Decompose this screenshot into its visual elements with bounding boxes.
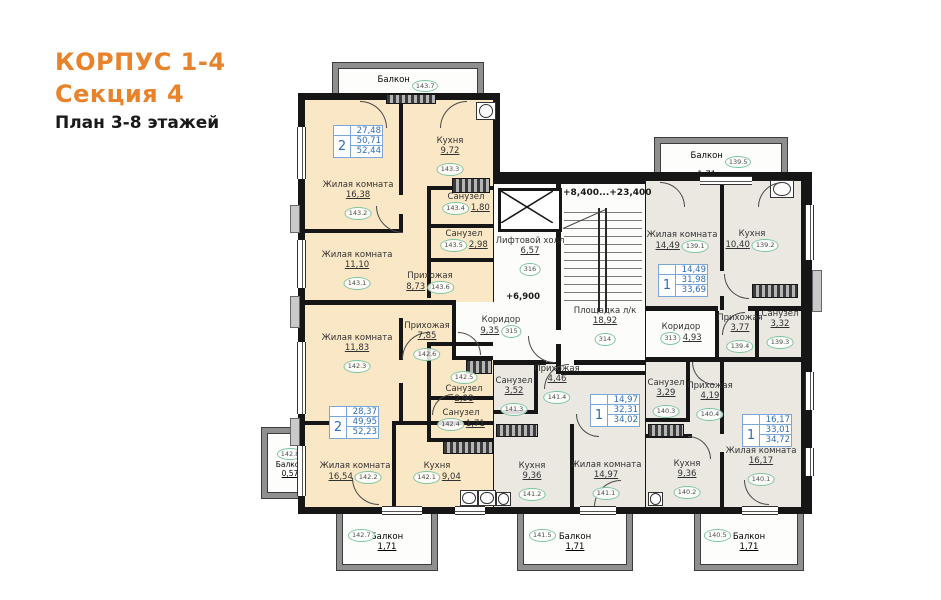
room-tag: 143.1	[344, 277, 371, 290]
room-area: 3,29	[648, 388, 685, 398]
room-tag: 139.1	[682, 240, 709, 253]
window	[297, 342, 306, 414]
apartment-rooms-count: 1	[659, 275, 676, 296]
room-label-living-16-38: Жилая комната 16,38 143.2	[323, 180, 394, 220]
room-name: Прихожая	[406, 271, 454, 281]
room-label-wc-1-71: Санузел 142.41,71	[437, 408, 485, 431]
room-area: 1,71	[740, 542, 759, 552]
plan-title-building: КОРПУС 1-4	[55, 48, 226, 76]
apartment-area: 33,01	[760, 425, 791, 435]
apartment-rooms-count: 1	[743, 425, 760, 446]
room-name: Жилая комната	[320, 461, 391, 471]
window	[455, 506, 485, 515]
apartment-info-140: 1 16,17 33,01 34,72	[742, 414, 792, 447]
wall	[452, 300, 456, 360]
window	[580, 506, 616, 515]
room-tag: 141.2	[519, 488, 546, 501]
room-tag: 140.1	[748, 473, 775, 486]
room-label-living-16-54: Жилая комната 16,54142.2	[320, 461, 391, 484]
room-area: 3,77	[717, 323, 763, 333]
wall-pier	[290, 296, 300, 328]
room-name: Прихожая	[717, 313, 763, 323]
room-tag: 139.4	[727, 340, 754, 353]
vent-circle	[648, 492, 663, 506]
stair-rail	[598, 208, 600, 312]
room-label-living-16-17: Жилая комната 16,17 140.1	[726, 446, 797, 486]
window	[805, 205, 814, 260]
room-label-kitchen-9-04: Кухня 142.19,04	[413, 461, 461, 484]
apartment-area: 31,98	[676, 275, 707, 285]
apartment-total-area: 52,44	[351, 146, 382, 157]
room-name: Балкон	[559, 532, 591, 542]
room-area: 11,83	[322, 343, 393, 353]
room-tag: 143.7	[412, 80, 439, 93]
room-tag: 143.3	[437, 163, 464, 176]
apartment-total-area: 52,23	[347, 427, 378, 438]
room-name: Балкон	[371, 532, 403, 542]
plan-title-floors: План 3-8 этажей	[55, 113, 219, 133]
room-tag: 141.1	[593, 487, 620, 500]
room-label-hallway-4-46: Прихожая 4,46 141.4	[534, 364, 580, 404]
room-label-living-11-83: Жилая комната 11,83 142.3	[322, 333, 393, 373]
balcony-bottom-center: Балкон 1,71 141.5	[518, 508, 632, 570]
apartment-living-area: 28,37	[347, 407, 378, 417]
room-name: Жилая комната	[647, 230, 718, 240]
window	[700, 176, 752, 185]
room-tag: 142.6	[414, 348, 441, 361]
wall-pier	[290, 205, 300, 233]
room-name: Балкон	[378, 75, 410, 85]
wall	[427, 258, 493, 262]
room-label-hallway-3-77: Прихожая 3,77 139.4	[717, 313, 763, 353]
room-tag: 140.2	[674, 486, 701, 499]
wall	[646, 306, 718, 311]
room-name: Кухня	[519, 461, 546, 471]
room-tag: 141.3	[501, 403, 528, 416]
apartment-living-area: 14,97	[608, 395, 639, 405]
apartment-living-area: 27,48	[351, 126, 382, 136]
room-area: 1,71	[466, 419, 485, 429]
room-area: 1,71	[566, 542, 585, 552]
room-tag: 143.6	[427, 281, 454, 294]
apartment-living-area: 14,49	[676, 265, 707, 275]
apartment-info-139: 1 14,49 31,98 33,69	[658, 264, 708, 297]
vent-circle	[496, 492, 511, 506]
room-tag: 139.2	[752, 239, 779, 252]
room-area: 14,49	[656, 241, 680, 251]
room-tag: 139.5	[725, 156, 752, 169]
room-name: Санузел	[496, 376, 533, 386]
room-tag: 139.3	[767, 336, 794, 349]
window	[297, 127, 306, 179]
wall	[720, 296, 724, 310]
room-tag: 142.1	[413, 471, 440, 484]
room-area: 4,93	[683, 333, 702, 343]
room-label-wc-2-98b: 142.5 Санузел 2,98	[446, 364, 483, 404]
room-label-wc-3-29: Санузел 3,29 140.3	[648, 378, 685, 418]
wall-pier	[812, 270, 822, 312]
room-area: 1,80	[471, 203, 490, 213]
room-name: Лифтовой холл	[496, 236, 565, 246]
apartment-total-area: 34,72	[760, 435, 791, 446]
window	[805, 448, 814, 476]
room-name: Жилая комната	[322, 333, 393, 343]
apartment-living-area: 16,17	[760, 415, 791, 425]
room-label-hallway-8-73: Прихожая 8,73143.6	[406, 271, 454, 294]
wall	[305, 229, 403, 233]
room-area: 10,40	[726, 240, 750, 250]
room-name: Кухня	[726, 229, 779, 239]
room-name: Балкон	[691, 151, 723, 161]
room-name: Прихожая	[404, 321, 450, 331]
apartment-rooms-count: 2	[330, 417, 347, 438]
vent-block	[386, 94, 436, 104]
wall	[392, 425, 396, 507]
room-tag: 314	[595, 333, 615, 346]
apartment-info-142: 2 28,37 49,95 52,23	[329, 406, 379, 439]
room-label-corridor-315: Коридор 9,35315	[480, 315, 521, 338]
apartment-area: 49,95	[347, 417, 378, 427]
room-area: 8,73	[406, 282, 425, 292]
room-area: 11,10	[322, 260, 393, 270]
room-area: 16,54	[329, 472, 353, 482]
apartment-area: 32,31	[608, 405, 639, 415]
elevator-shaft	[498, 188, 562, 232]
room-name: Коридор	[480, 315, 521, 325]
window	[297, 240, 306, 288]
room-tag: 315	[501, 325, 521, 338]
room-area: 3,52	[496, 386, 533, 396]
room-label-corridor-313: Коридор 3134,93	[660, 322, 701, 345]
room-name: Прихожая	[534, 364, 580, 374]
apartment-rooms-count: 2	[334, 136, 351, 157]
room-label-kitchen-141: Кухня 9,36 141.2	[519, 461, 546, 501]
vent-circle	[460, 490, 478, 506]
room-name: Прихожая	[687, 381, 733, 391]
room-tag: 313	[660, 332, 680, 345]
apartment-info-143: 2 27,48 50,71 52,44	[333, 125, 383, 158]
room-area: 14,97	[571, 470, 642, 480]
room-tag: 143.4	[442, 202, 469, 215]
vent-block	[443, 441, 493, 454]
vent-block	[752, 284, 798, 298]
apartment-area: 50,71	[351, 136, 382, 146]
room-area: 4,19	[687, 391, 733, 401]
vent-block	[496, 424, 538, 437]
wall-apartment-divider	[716, 357, 801, 362]
hall-elevation-label: +6,900	[506, 292, 540, 302]
wall	[399, 100, 403, 195]
room-label-hallway-4-19: Прихожая 4,19 140.4	[687, 381, 733, 421]
room-tag: 143.5	[440, 239, 467, 252]
room-area: 4,46	[534, 374, 580, 384]
room-area: 2,98	[469, 240, 488, 250]
room-tag: 142.7	[348, 529, 375, 542]
room-name: Кухня	[674, 459, 701, 469]
apartment-info-141: 1 14,97 32,31 34,02	[590, 394, 640, 427]
apartment-total-area: 33,69	[676, 285, 707, 296]
room-tag: 142.4	[437, 418, 464, 431]
wall	[720, 452, 724, 507]
wall	[427, 224, 493, 228]
room-name: Санузел	[446, 384, 483, 394]
room-name: Санузел	[442, 192, 490, 202]
balcony-bottom-right: Балкон 1,71 140.5	[695, 508, 803, 570]
room-label-lift-hall: Лифтовой холл 6,57 316	[496, 236, 565, 276]
plan-title-section: Секция 4	[55, 80, 184, 108]
room-label-wc-3-52: Санузел 3,52 141.3	[496, 376, 533, 416]
room-name: Жилая комната	[323, 180, 394, 190]
room-label-wc-3-32: Санузел 3,32 139.3	[762, 309, 799, 349]
room-area: 18,92	[574, 316, 637, 326]
floor-plan: КОРПУС 1-4 Секция 4 План 3-8 этажей Балк…	[0, 0, 941, 600]
stair-treads	[564, 212, 642, 306]
room-name: Балкон	[733, 532, 765, 542]
room-area: 7,85	[404, 331, 450, 341]
wall-pier	[290, 418, 300, 446]
room-tag: 143.2	[345, 207, 372, 220]
room-name: Кухня	[437, 136, 464, 146]
apartment-rooms-count: 1	[591, 405, 608, 426]
wall-apartment-divider	[646, 357, 690, 362]
room-label-stair-landing: Площадка л/к 18,92 314	[574, 306, 637, 346]
room-area: 16,38	[323, 190, 394, 200]
room-name: Жилая комната	[571, 460, 642, 470]
room-area: 3,32	[762, 319, 799, 329]
room-area: 6,57	[496, 246, 565, 256]
room-label-kitchen-143: Кухня 9,72 143.3	[437, 136, 464, 176]
room-area: 2,98	[446, 394, 483, 404]
room-label-wc-1-80: Санузел 143.41,80	[442, 192, 490, 215]
room-name: Жилая комната	[322, 250, 393, 260]
room-area: 9,36	[674, 469, 701, 479]
window	[805, 372, 814, 410]
wall-apartment-divider	[305, 300, 455, 305]
balcony-bottom-left: Балкон 1,71 142.7	[337, 508, 437, 570]
elevator-x-icon	[501, 191, 553, 223]
wall	[646, 418, 690, 422]
room-tag: 141.4	[544, 391, 571, 404]
room-tag: 140.4	[697, 408, 724, 421]
room-name: Коридор	[660, 322, 701, 332]
stair-rail	[605, 208, 607, 312]
room-tag: 316	[520, 263, 540, 276]
room-area: 9,72	[437, 146, 464, 156]
wall	[399, 383, 403, 423]
room-name: Кухня	[413, 461, 461, 471]
room-tag: 142.2	[355, 471, 382, 484]
vent-circle	[478, 490, 496, 506]
room-name: Санузел	[440, 229, 488, 239]
room-area: 0,57	[282, 469, 299, 478]
room-label-living-14-49: Жилая комната 14,49139.1	[647, 230, 718, 253]
stairs-elevation-label: +8,400...+23,400	[563, 188, 652, 198]
window	[297, 446, 306, 496]
room-area: 9,36	[519, 471, 546, 481]
wall	[574, 360, 645, 365]
room-label-kitchen-10-40: Кухня 10,40139.2	[726, 229, 779, 252]
room-tag: 140.3	[653, 405, 680, 418]
room-area: 16,17	[726, 456, 797, 466]
vent-circle	[476, 102, 496, 120]
room-label-living-14-97: Жилая комната 14,97 141.1	[571, 460, 642, 500]
room-name: Санузел	[437, 408, 485, 418]
room-tag: 142.3	[344, 360, 371, 373]
apartment-total-area: 34,02	[608, 415, 639, 426]
room-tag: 142.5	[451, 371, 478, 384]
vent-block	[648, 424, 684, 437]
room-tag: 141.5	[529, 529, 556, 542]
room-label-hallway-7-85: Прихожая 7,85 142.6	[404, 321, 450, 361]
room-label-living-11-10: Жилая комната 11,10 143.1	[322, 250, 393, 290]
room-label-kitchen-140: Кухня 9,36 140.2	[674, 459, 701, 499]
room-name: Площадка л/к	[574, 306, 637, 316]
vent-block	[452, 178, 490, 193]
room-area: 9,04	[442, 472, 461, 482]
room-area: 9,35	[480, 326, 499, 336]
room-name: Санузел	[762, 309, 799, 319]
room-name: Жилая комната	[726, 446, 797, 456]
room-area: 1,71	[378, 542, 397, 552]
room-label-wc-2-98a: Санузел 143.52,98	[440, 229, 488, 252]
window	[382, 506, 422, 515]
room-name: Санузел	[648, 378, 685, 388]
wall	[720, 181, 724, 271]
room-tag: 140.5	[704, 529, 731, 542]
window	[742, 506, 778, 515]
